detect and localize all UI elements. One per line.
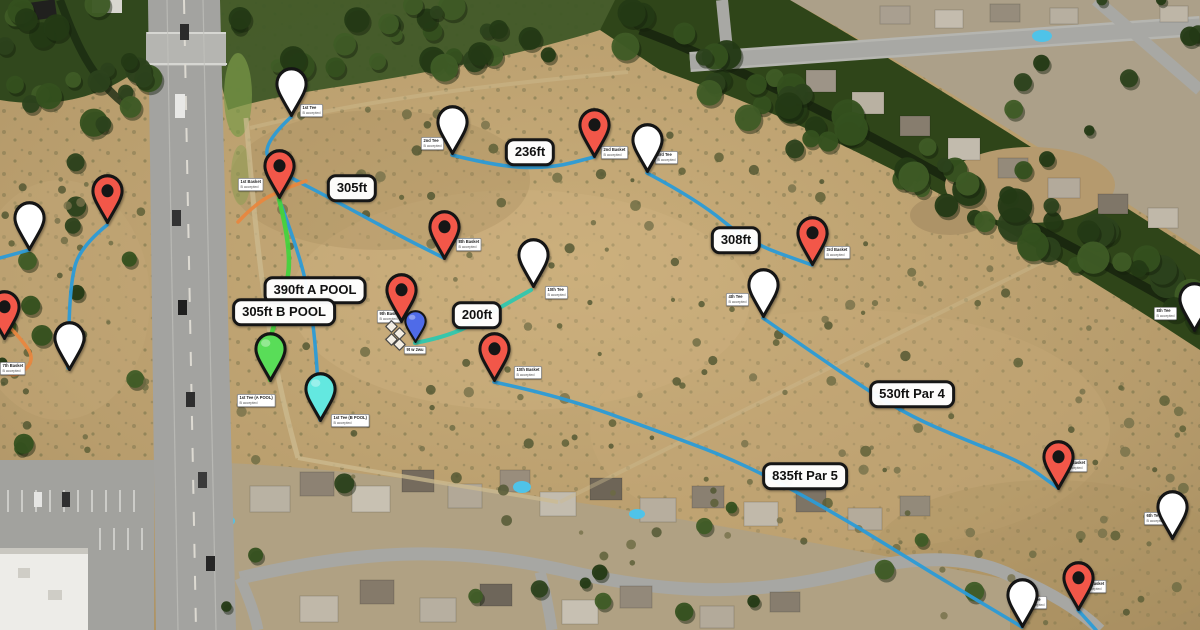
- marker-note-sub: B accepted: [728, 300, 746, 305]
- marker-note-title: 9t w 2wu: [406, 348, 423, 353]
- white-pin-icon: [517, 238, 550, 288]
- map-marker-white[interactable]: [13, 201, 46, 251]
- marker-note-sub: B accepted: [240, 185, 261, 190]
- marker-note-sub: B accepted: [239, 401, 272, 406]
- white-pin-icon: [1006, 578, 1039, 628]
- white-pin-icon: [275, 67, 308, 117]
- map-marker-red[interactable]: [428, 210, 461, 260]
- marker-note: 7th BasketB accepted: [0, 362, 26, 375]
- map-marker-red[interactable]: [796, 216, 829, 266]
- white-pin-icon: [1178, 282, 1200, 332]
- map-marker-white[interactable]: [275, 67, 308, 117]
- marker-note: 1st BasketB accepted: [238, 178, 263, 191]
- red-pin-icon: [478, 332, 511, 382]
- marker-note: 1st Tee (A POOL)B accepted: [237, 394, 275, 407]
- red-pin-icon: [796, 216, 829, 266]
- blue-pin-icon: [404, 310, 427, 343]
- marker-note-sub: B accepted: [826, 253, 847, 258]
- map-marker-red[interactable]: [91, 174, 124, 224]
- map-marker-red[interactable]: [1062, 561, 1095, 611]
- marker-note: 4th TeeB accepted: [726, 293, 749, 306]
- map-marker-white[interactable]: [1156, 490, 1189, 540]
- white-pin-icon: [1156, 490, 1189, 540]
- marker-note-sub: B accepted: [547, 293, 565, 298]
- marker-note-sub: B accepted: [458, 245, 479, 250]
- satellite-map[interactable]: 305ft236ft308ft390ft A POOL305ft B POOL2…: [0, 0, 1200, 630]
- map-marker-cyan[interactable]: [304, 372, 337, 422]
- marker-note: 8th TeeB accepted: [1154, 307, 1177, 320]
- white-pin-icon: [747, 268, 780, 318]
- map-marker-blue[interactable]: [404, 310, 427, 343]
- marker-note: 9t w 2wu: [404, 346, 426, 354]
- map-marker-white[interactable]: [1178, 282, 1200, 332]
- marker-note-sub: B accepted: [1156, 314, 1174, 319]
- red-pin-icon: [1042, 440, 1075, 490]
- map-marker-red[interactable]: [0, 290, 21, 340]
- red-pin-icon: [91, 174, 124, 224]
- cyan-pin-icon: [304, 372, 337, 422]
- map-marker-red[interactable]: [1042, 440, 1075, 490]
- white-pin-icon: [13, 201, 46, 251]
- red-pin-icon: [0, 290, 21, 340]
- map-markers: 1st TeeB accepted1st BasketB accepted2nd…: [0, 0, 1200, 630]
- map-marker-green[interactable]: [254, 332, 287, 382]
- map-marker-white[interactable]: [1006, 578, 1039, 628]
- marker-note: 1st Tee (B POOL)B accepted: [331, 414, 369, 427]
- red-pin-icon: [578, 108, 611, 158]
- red-pin-icon: [428, 210, 461, 260]
- map-marker-white[interactable]: [517, 238, 550, 288]
- map-marker-red[interactable]: [478, 332, 511, 382]
- red-pin-icon: [263, 149, 296, 199]
- marker-note-sub: B accepted: [516, 373, 539, 378]
- marker-note-sub: B accepted: [333, 421, 366, 426]
- white-pin-icon: [631, 123, 664, 173]
- white-pin-icon: [436, 105, 469, 155]
- red-pin-icon: [1062, 561, 1095, 611]
- map-marker-white[interactable]: [436, 105, 469, 155]
- white-pin-icon: [53, 321, 86, 371]
- green-pin-icon: [254, 332, 287, 382]
- marker-note: 10th BasketB accepted: [514, 366, 542, 379]
- map-marker-white[interactable]: [631, 123, 664, 173]
- map-marker-white[interactable]: [53, 321, 86, 371]
- marker-note-sub: B accepted: [2, 369, 23, 374]
- map-marker-red[interactable]: [263, 149, 296, 199]
- map-marker-white[interactable]: [747, 268, 780, 318]
- map-marker-red[interactable]: [578, 108, 611, 158]
